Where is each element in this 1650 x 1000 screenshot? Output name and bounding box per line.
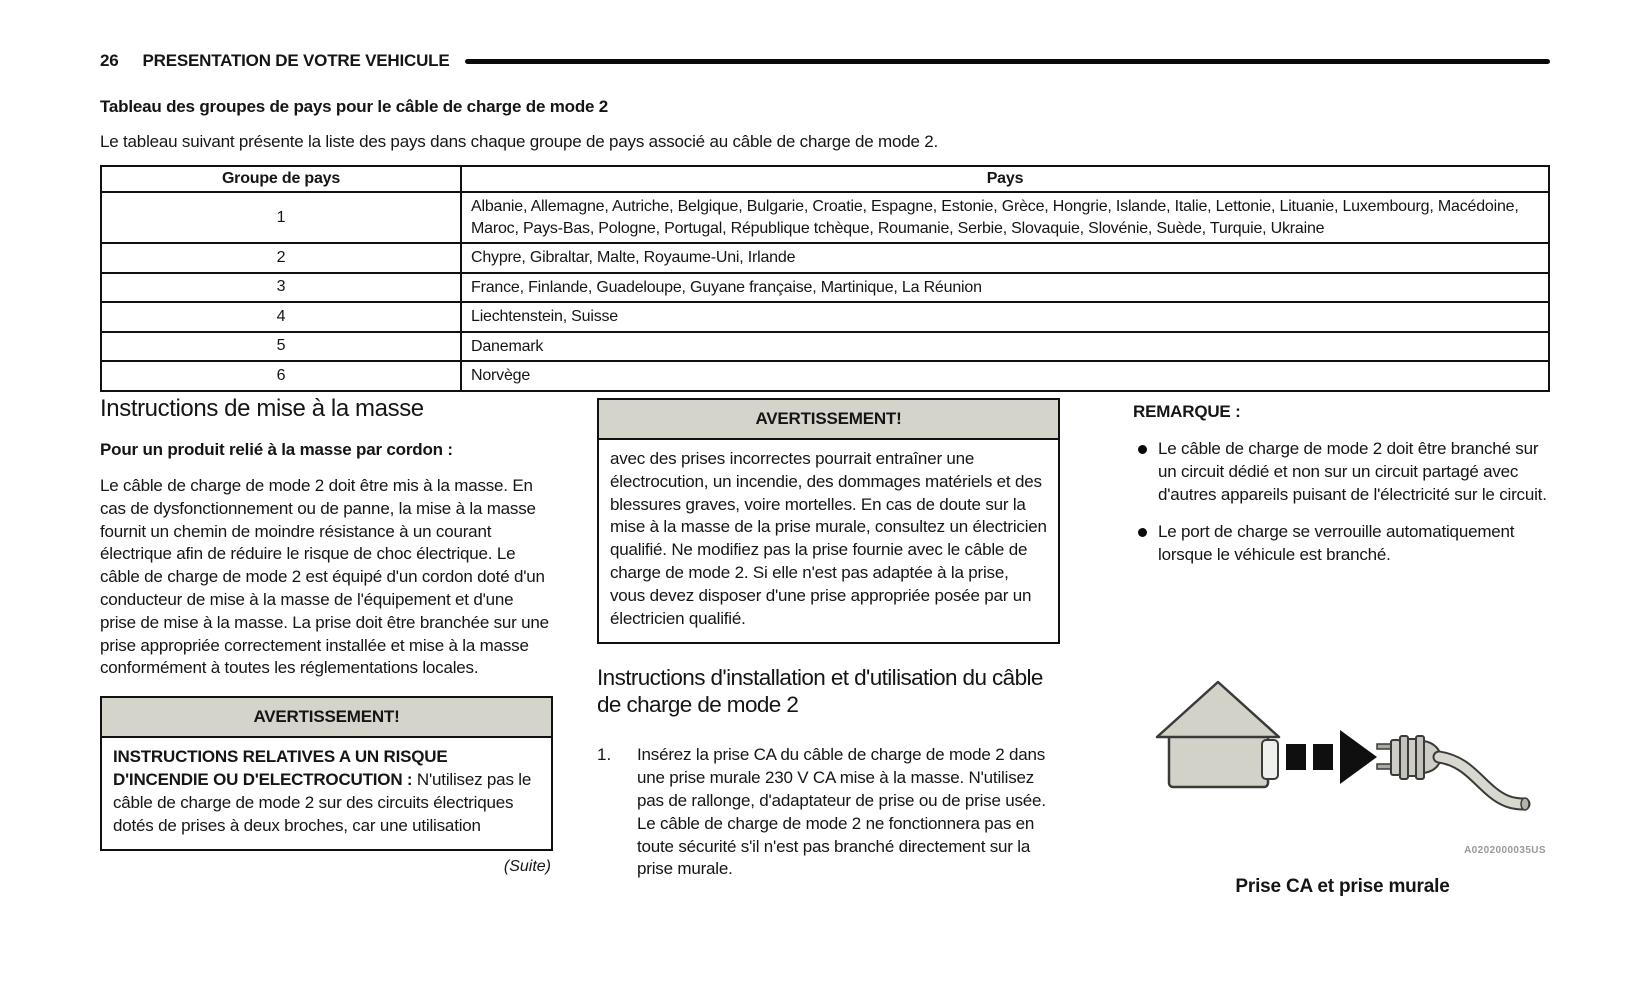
table-section-title: Tableau des groupes de pays pour le câbl…	[100, 97, 608, 117]
header-rule	[465, 59, 1550, 64]
table-row: 4 Liechtenstein, Suisse	[101, 302, 1549, 332]
countries-cell: Danemark	[461, 332, 1549, 362]
table-header-row: Groupe de pays Pays	[101, 166, 1549, 192]
plug-icon	[1377, 736, 1441, 779]
column-installation: AVERTISSEMENT! avec des prises incorrect…	[597, 385, 1060, 881]
cable	[1439, 757, 1529, 810]
step-number: 1.	[597, 744, 637, 881]
wall-outlet-icon	[1262, 740, 1278, 779]
chapter-title: PRESENTATION DE VOTRE VEHICULE	[143, 51, 450, 71]
note-item: Le câble de charge de mode 2 doit être b…	[1133, 438, 1552, 506]
table-row: 2 Chypre, Gibraltar, Malte, Royaume-Uni,…	[101, 243, 1549, 273]
house-icon	[1157, 682, 1279, 787]
warning-title: AVERTISSEMENT!	[599, 400, 1058, 440]
table-row: 1 Albanie, Allemagne, Autriche, Belgique…	[101, 192, 1549, 243]
warning-body: INSTRUCTIONS RELATIVES A UN RISQUE D'INC…	[102, 738, 551, 849]
figure-caption: Prise CA et prise murale	[1133, 876, 1552, 898]
countries-cell: Liechtenstein, Suisse	[461, 302, 1549, 332]
column-header-pays: Pays	[461, 166, 1549, 192]
country-group-table: Groupe de pays Pays 1 Albanie, Allemagne…	[100, 165, 1550, 392]
continuation-marker: (Suite)	[100, 858, 553, 876]
step-text: Insérez la prise CA du câble de charge d…	[637, 744, 1060, 881]
note-list: Le câble de charge de mode 2 doit être b…	[1133, 438, 1552, 567]
note-label: REMARQUE :	[1133, 402, 1552, 422]
warning-body-text: avec des prises incorrectes pourrait ent…	[599, 440, 1058, 642]
figure-ac-plug-wall-outlet: A0202000035US Prise CA et prise murale	[1133, 640, 1552, 910]
column-note-figure: REMARQUE : Le câble de charge de mode 2 …	[1133, 385, 1552, 1000]
grounding-heading: Instructions de mise à la masse	[100, 395, 553, 423]
bullet-icon	[1138, 445, 1147, 454]
warning-box-outlets: AVERTISSEMENT! avec des prises incorrect…	[597, 398, 1060, 644]
warning-lead-text: INSTRUCTIONS RELATIVES A UN RISQUE D'INC…	[113, 747, 447, 789]
table-section-intro: Le tableau suivant présente la liste des…	[100, 132, 938, 152]
group-number-cell: 2	[101, 243, 461, 273]
group-number-cell: 4	[101, 302, 461, 332]
table-row: 5 Danemark	[101, 332, 1549, 362]
arrow-icon	[1286, 730, 1377, 784]
page-header: 26 PRESENTATION DE VOTRE VEHICULE	[100, 51, 1550, 71]
countries-cell: Chypre, Gibraltar, Malte, Royaume-Uni, I…	[461, 243, 1549, 273]
grounding-paragraph: Le câble de charge de mode 2 doit être m…	[100, 475, 553, 680]
plug-illustration	[1133, 640, 1552, 910]
note-text: Le câble de charge de mode 2 doit être b…	[1158, 438, 1552, 506]
group-number-cell: 5	[101, 332, 461, 362]
countries-cell: France, Finlande, Guadeloupe, Guyane fra…	[461, 273, 1549, 303]
warning-box-fire: AVERTISSEMENT! INSTRUCTIONS RELATIVES A …	[100, 696, 553, 851]
manual-page: 26 PRESENTATION DE VOTRE VEHICULE Tablea…	[0, 0, 1650, 1000]
column-grounding: Instructions de mise à la masse Pour un …	[100, 385, 553, 876]
grounding-subheading: Pour un produit relié à la masse par cor…	[100, 440, 553, 460]
table-row: 3 France, Finlande, Guadeloupe, Guyane f…	[101, 273, 1549, 303]
countries-cell: Albanie, Allemagne, Autriche, Belgique, …	[461, 192, 1549, 243]
installation-steps: 1. Insérez la prise CA du câble de charg…	[597, 744, 1060, 881]
warning-title: AVERTISSEMENT!	[102, 698, 551, 738]
page-number: 26	[100, 51, 119, 71]
group-number-cell: 3	[101, 273, 461, 303]
note-text: Le port de charge se verrouille automati…	[1158, 521, 1552, 567]
group-number-cell: 1	[101, 192, 461, 243]
note-item: Le port de charge se verrouille automati…	[1133, 521, 1552, 567]
installation-heading: Instructions d'installation et d'utilisa…	[597, 664, 1060, 718]
figure-watermark: A0202000035US	[1133, 845, 1546, 856]
column-header-group: Groupe de pays	[101, 166, 461, 192]
step-item: 1. Insérez la prise CA du câble de charg…	[597, 744, 1060, 881]
bullet-icon	[1138, 528, 1147, 537]
